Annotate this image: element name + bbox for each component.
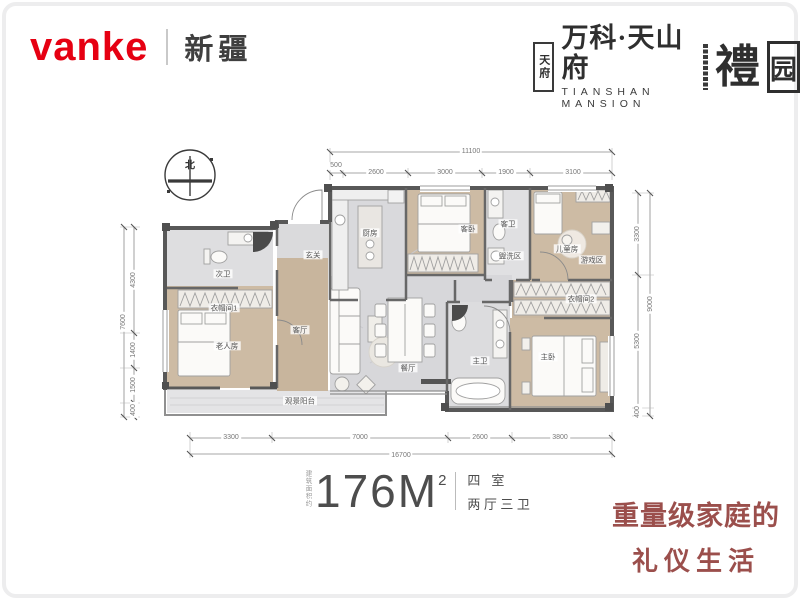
room-label-entry: 玄关 (304, 250, 323, 259)
brand-divider (166, 29, 168, 65)
dim-left-total: 7600 (120, 312, 128, 332)
room-label-master-bath: 主卫 (471, 356, 490, 365)
yuan-character: 园 (770, 48, 797, 87)
dim-left-seg4: 400 (130, 402, 138, 418)
dim-top-seg5: 3100 (563, 169, 583, 177)
yuan-box: 园 (767, 41, 800, 93)
project-names: 万科·天山府 TIANSHAN MANSION (561, 24, 695, 110)
dim-bottom-total: 16700 (389, 452, 412, 460)
room-label-guest-bath: 客卫 (499, 219, 518, 228)
room-label-dining-room: 餐厅 (399, 363, 418, 372)
dim-right-seg1: 3300 (634, 224, 642, 244)
dim-left-seg1: 4300 (130, 270, 138, 290)
dim-right-seg3: 400 (634, 404, 642, 420)
room-label-play-area: 游戏区 (579, 255, 606, 264)
tagline: 重量级家庭的 礼仪生活 (596, 494, 796, 578)
room-label-closet2: 衣帽间2 (566, 294, 597, 303)
room-label-master-bedroom: 主卧 (539, 352, 558, 361)
seal-icon: 天府 (533, 42, 554, 92)
seal-text: 天府 (536, 54, 552, 80)
poster: vanke 新疆 天府 万科·天山府 TIANSHAN MANSION 禮 园 (0, 0, 800, 600)
dim-top-total: 11100 (460, 148, 482, 156)
dim-top-seg2: 2600 (366, 169, 386, 177)
room-count-line2: 两厅三卫 (467, 494, 533, 513)
dim-top-seg3: 3000 (435, 169, 455, 177)
room-label-wash-area: 盥洗区 (497, 251, 524, 260)
dim-left-seg2: 1400 (130, 340, 138, 360)
dim-top-seg4: 1900 (496, 169, 516, 177)
dim-bottom-seg1: 3300 (221, 434, 241, 442)
room-label-balcony: 观景阳台 (283, 396, 317, 405)
li-character: 禮 (715, 45, 760, 90)
dim-left-seg3: 1500 (130, 375, 138, 395)
area-superscript: 2 (438, 472, 446, 489)
dim-bottom-seg4: 3800 (550, 434, 570, 442)
tagline-line1: 重量级家庭的 (596, 494, 796, 533)
room-count-line1: 四室 (467, 470, 533, 489)
seal-strip-icon (703, 44, 708, 90)
dim-bottom-seg2: 7000 (350, 434, 370, 442)
dim-bottom-seg3: 2600 (470, 434, 490, 442)
room-label-kids-room: 儿童房 (554, 244, 581, 253)
tagline-line2: 礼仪生活 (596, 541, 796, 578)
dim-top-seg1: 500 (328, 162, 344, 170)
room-count: 四室 两厅三卫 (467, 470, 533, 513)
project-logo: 天府 万科·天山府 TIANSHAN MANSION 禮 园 (533, 24, 800, 110)
dim-right-seg2: 5300 (634, 331, 642, 351)
unit-summary: 建筑面积约 176M2 四室 两厅三卫 (302, 468, 533, 514)
vanke-logo: vanke (30, 27, 148, 67)
dim-right-total: 9000 (647, 294, 655, 314)
project-name-cn: 万科·天山府 (561, 24, 695, 83)
room-label-closet1: 衣帽间1 (209, 303, 240, 312)
floorplan: 北 次卫 衣帽间1 老人房 观景阳台 玄关 厨房 客卧 客卫 盥洗区 儿童房 游… (120, 128, 680, 470)
room-label-secondary-bath: 次卫 (214, 269, 233, 278)
room-label-guest-bedroom: 客卧 (459, 224, 478, 233)
project-name-en: TIANSHAN MANSION (561, 86, 695, 110)
area-value: 176M2 (315, 468, 446, 514)
room-label-living-room: 客厅 (291, 325, 310, 334)
brand-left: vanke 新疆 (30, 26, 252, 68)
room-label-kitchen: 厨房 (361, 228, 380, 237)
area-number: 176M (315, 465, 438, 517)
area-note: 建筑面积约 (302, 470, 312, 512)
region-label: 新疆 (184, 26, 252, 68)
summary-divider (455, 472, 456, 510)
compass-north-label: 北 (185, 157, 195, 172)
room-label-elder-room: 老人房 (214, 341, 241, 350)
